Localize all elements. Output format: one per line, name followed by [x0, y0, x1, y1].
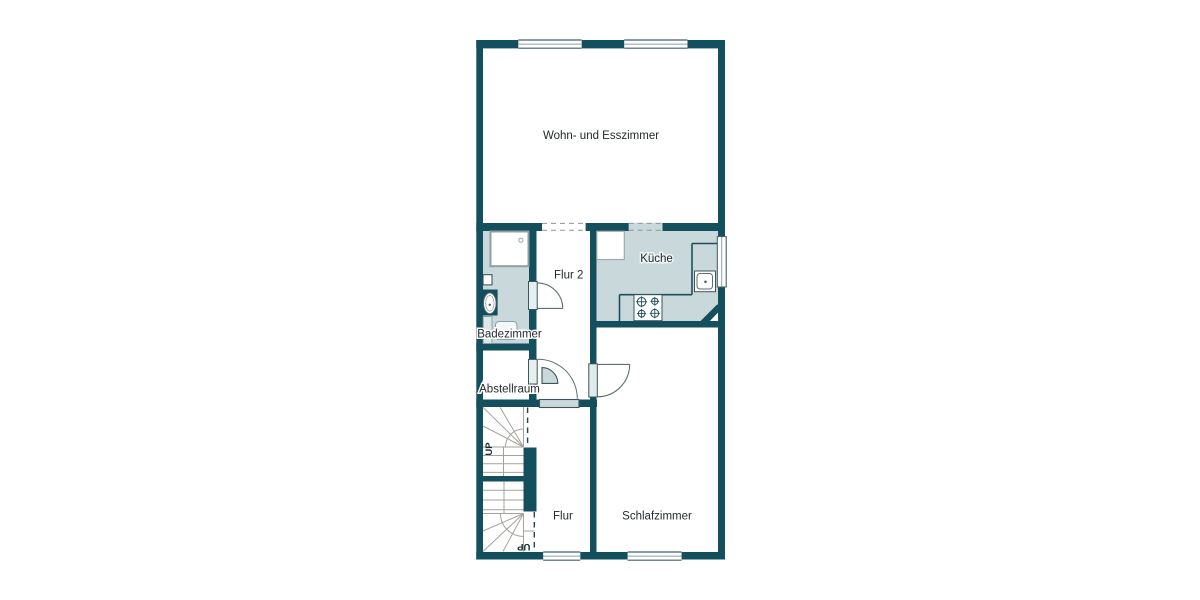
svg-text:Küche: Küche	[640, 253, 673, 265]
svg-text:Schlafzimmer: Schlafzimmer	[622, 511, 692, 523]
svg-text:Wohn- und Esszimmer: Wohn- und Esszimmer	[543, 130, 659, 142]
svg-text:UP: UP	[484, 442, 495, 456]
svg-text:Flur 2: Flur 2	[554, 270, 583, 282]
svg-text:Flur: Flur	[553, 511, 573, 523]
svg-text:UP: UP	[517, 541, 531, 552]
svg-text:Badezimmer: Badezimmer	[477, 329, 542, 341]
svg-text:Abstellraum: Abstellraum	[479, 384, 540, 396]
